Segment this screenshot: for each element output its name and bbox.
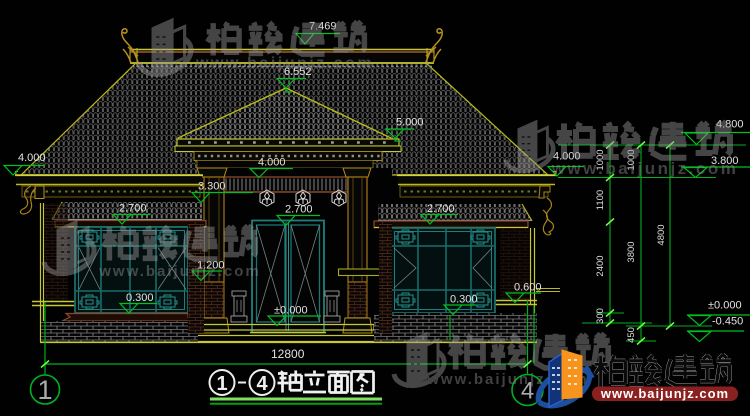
svg-text:2.700: 2.700 (119, 203, 147, 215)
svg-text:0.300: 0.300 (450, 294, 478, 306)
svg-text:2.700: 2.700 (285, 204, 313, 216)
svg-text:±0.000: ±0.000 (708, 300, 742, 312)
svg-text:300: 300 (595, 308, 606, 324)
svg-text:3800: 3800 (626, 241, 637, 262)
svg-text:450: 450 (626, 327, 637, 343)
svg-text:4800: 4800 (656, 224, 667, 245)
svg-text:2.700: 2.700 (427, 203, 455, 215)
svg-text:5.000: 5.000 (396, 117, 424, 129)
svg-text:www.baijunjz.com: www.baijunjz.com (551, 159, 739, 178)
svg-text:-0.450: -0.450 (712, 316, 743, 328)
svg-text:www.baijunjz.com: www.baijunjz.com (195, 55, 374, 72)
svg-text:1100: 1100 (595, 190, 606, 210)
svg-text:4.000: 4.000 (258, 157, 286, 169)
svg-text:4.000: 4.000 (18, 152, 46, 164)
svg-text:0.600: 0.600 (514, 282, 542, 294)
svg-text:1: 1 (37, 375, 52, 405)
svg-text:12800: 12800 (271, 347, 305, 361)
svg-text:1: 1 (216, 373, 227, 395)
svg-text:±0.000: ±0.000 (274, 305, 308, 317)
svg-text:4: 4 (256, 373, 268, 395)
svg-text:3.300: 3.300 (198, 181, 226, 193)
svg-text:www.baijunjz.com: www.baijunjz.com (98, 263, 260, 280)
svg-text:www.baijunjz.com: www.baijunjz.com (600, 386, 729, 401)
svg-text:0.300: 0.300 (126, 292, 154, 304)
svg-text:2400: 2400 (595, 255, 606, 276)
